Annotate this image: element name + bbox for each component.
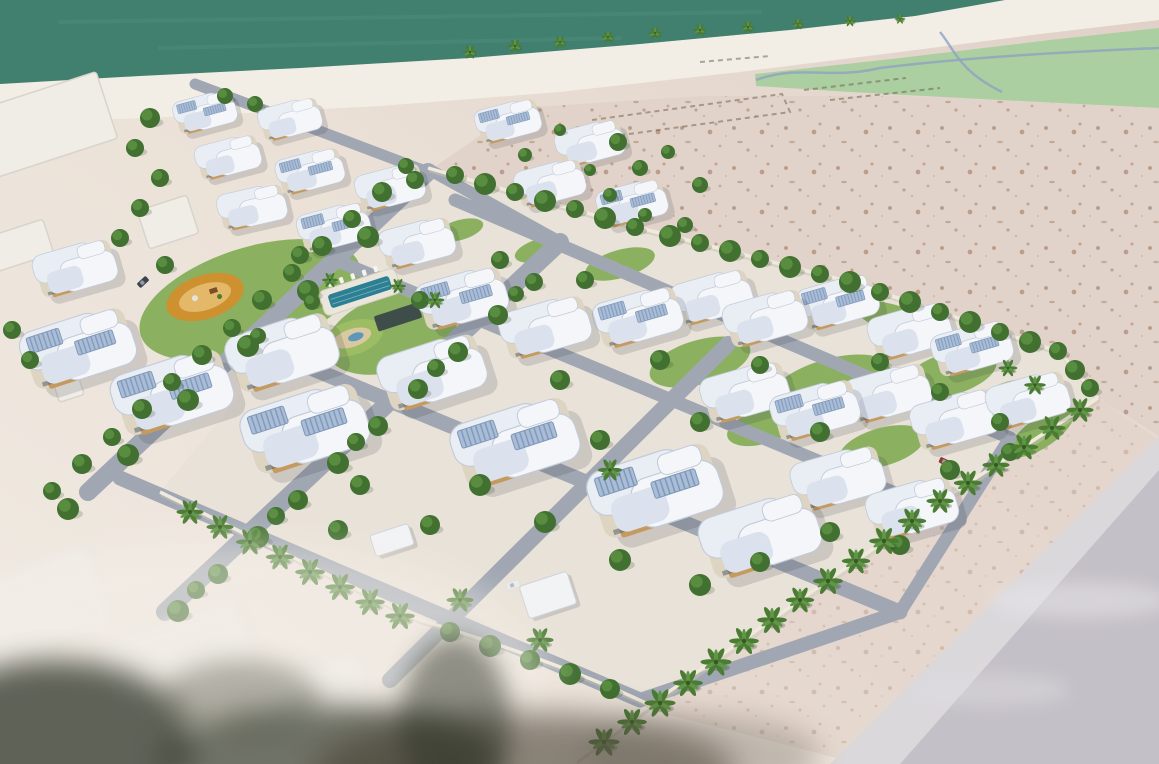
deciduous-tree bbox=[74, 456, 85, 467]
deciduous-tree bbox=[519, 149, 527, 157]
deciduous-tree bbox=[932, 384, 942, 394]
deciduous-tree bbox=[251, 329, 260, 338]
deciduous-tree bbox=[507, 184, 517, 194]
deciduous-tree bbox=[691, 576, 703, 588]
deciduous-tree bbox=[59, 500, 71, 512]
deciduous-tree bbox=[407, 172, 417, 182]
deciduous-tree bbox=[526, 274, 536, 284]
deciduous-tree bbox=[752, 357, 762, 367]
deciduous-tree bbox=[693, 178, 702, 187]
deciduous-tree bbox=[721, 242, 733, 254]
deciduous-tree bbox=[218, 89, 227, 98]
deciduous-tree bbox=[639, 209, 647, 217]
deciduous-tree bbox=[536, 513, 548, 525]
deciduous-tree bbox=[610, 134, 620, 144]
deciduous-tree bbox=[119, 446, 131, 458]
aerial-render-viewport bbox=[0, 0, 1159, 764]
foreground-blur bbox=[910, 674, 1070, 706]
deciduous-tree bbox=[872, 284, 882, 294]
deciduous-tree bbox=[305, 295, 314, 304]
deciduous-tree bbox=[942, 462, 953, 473]
deciduous-tree bbox=[555, 125, 562, 132]
deciduous-tree bbox=[633, 161, 642, 170]
deciduous-tree bbox=[412, 292, 422, 302]
foreground-blur bbox=[160, 660, 320, 740]
deciduous-tree bbox=[932, 304, 942, 314]
deciduous-tree bbox=[422, 517, 433, 528]
deciduous-tree bbox=[292, 247, 302, 257]
deciduous-tree bbox=[164, 374, 174, 384]
deciduous-tree bbox=[268, 508, 278, 518]
deciduous-tree bbox=[662, 146, 670, 154]
deciduous-tree bbox=[370, 418, 381, 429]
deciduous-tree bbox=[596, 209, 608, 221]
deciduous-tree bbox=[577, 272, 587, 282]
deciduous-tree bbox=[4, 322, 14, 332]
deciduous-tree bbox=[509, 287, 518, 296]
deciduous-tree bbox=[447, 167, 457, 177]
deciduous-tree bbox=[142, 110, 153, 121]
deciduous-tree bbox=[592, 432, 603, 443]
deciduous-tree bbox=[410, 381, 421, 392]
deciduous-tree bbox=[348, 434, 358, 444]
deciduous-tree bbox=[492, 252, 502, 262]
deciduous-tree bbox=[344, 211, 354, 221]
deciduous-tree bbox=[476, 175, 488, 187]
deciduous-tree bbox=[822, 524, 833, 535]
deciduous-tree bbox=[329, 454, 341, 466]
deciduous-tree bbox=[471, 476, 483, 488]
deciduous-tree bbox=[157, 257, 167, 267]
deciduous-tree bbox=[661, 227, 673, 239]
deciduous-tree bbox=[134, 401, 145, 412]
deciduous-tree bbox=[678, 218, 687, 227]
deciduous-tree bbox=[1082, 380, 1092, 390]
deciduous-tree bbox=[536, 192, 548, 204]
deciduous-tree bbox=[112, 230, 122, 240]
deciduous-tree bbox=[152, 170, 162, 180]
deciduous-tree bbox=[841, 273, 853, 285]
deciduous-tree bbox=[1050, 343, 1060, 353]
deciduous-tree bbox=[179, 391, 191, 403]
deciduous-tree bbox=[44, 483, 54, 493]
deciduous-tree bbox=[314, 238, 325, 249]
deciduous-tree bbox=[752, 554, 763, 565]
deciduous-tree bbox=[1067, 362, 1078, 373]
deciduous-tree bbox=[127, 140, 137, 150]
deciduous-tree bbox=[352, 477, 363, 488]
deciduous-tree bbox=[781, 258, 793, 270]
deciduous-tree bbox=[585, 165, 592, 172]
deciduous-tree bbox=[692, 414, 703, 425]
deciduous-tree bbox=[248, 97, 257, 106]
deciduous-tree bbox=[627, 219, 637, 229]
deciduous-tree bbox=[812, 266, 822, 276]
deciduous-tree bbox=[561, 665, 573, 677]
deciduous-tree bbox=[374, 184, 385, 195]
deciduous-tree bbox=[602, 681, 613, 692]
deciduous-tree bbox=[132, 200, 142, 210]
deciduous-tree bbox=[901, 293, 913, 305]
deciduous-tree bbox=[104, 429, 114, 439]
deciduous-tree bbox=[428, 360, 438, 370]
deciduous-tree bbox=[490, 307, 501, 318]
deciduous-tree bbox=[290, 492, 301, 503]
deciduous-tree bbox=[552, 372, 563, 383]
villa-community-aerial-render bbox=[0, 0, 1159, 764]
deciduous-tree bbox=[1021, 333, 1033, 345]
deciduous-tree bbox=[567, 201, 577, 211]
deciduous-tree bbox=[992, 324, 1002, 334]
deciduous-tree bbox=[692, 235, 702, 245]
deciduous-tree bbox=[652, 352, 663, 363]
deciduous-tree bbox=[399, 159, 408, 168]
deciduous-tree bbox=[961, 313, 973, 325]
deciduous-tree bbox=[872, 354, 882, 364]
deciduous-tree bbox=[254, 292, 265, 303]
deciduous-tree bbox=[284, 265, 294, 275]
deciduous-tree bbox=[450, 344, 461, 355]
deciduous-tree bbox=[224, 320, 234, 330]
deciduous-tree bbox=[611, 551, 623, 563]
deciduous-tree bbox=[22, 352, 32, 362]
deciduous-tree bbox=[604, 189, 612, 197]
deciduous-tree bbox=[359, 228, 371, 240]
deciduous-tree bbox=[299, 282, 311, 294]
deciduous-tree bbox=[992, 414, 1002, 424]
deciduous-tree bbox=[812, 424, 823, 435]
deciduous-tree bbox=[330, 522, 341, 533]
deciduous-tree bbox=[194, 347, 205, 358]
deciduous-tree bbox=[752, 251, 762, 261]
deciduous-tree bbox=[239, 337, 251, 349]
